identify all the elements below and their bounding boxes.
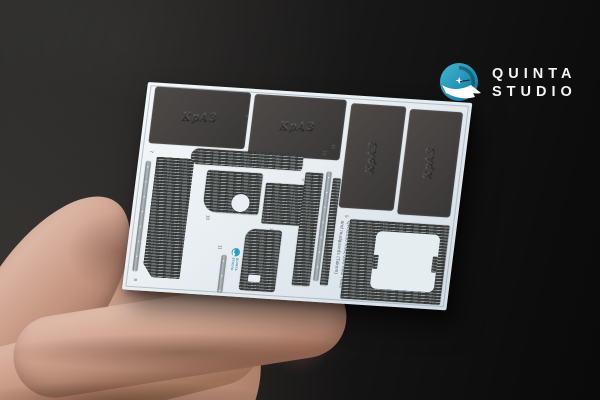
part-number-label: 9 <box>244 114 249 117</box>
part-number-label: 10 <box>205 215 211 220</box>
decal-sheet: КрАЗ КрАЗ КрАЗ КрАЗ <box>122 82 472 310</box>
part-numbers-layer: 794313121025811 <box>122 82 472 310</box>
part-number-label: 7 <box>149 150 154 153</box>
part-number-label: 11 <box>217 245 223 250</box>
quinta-studio-logo: QUINTA STUDIO <box>437 60 577 106</box>
photo-scene: КрАЗ КрАЗ КрАЗ КрАЗ <box>0 0 600 400</box>
quinta-logo-icon <box>437 60 483 106</box>
part-number-label: 4 <box>299 163 304 166</box>
brand-line2: STUDIO <box>492 83 577 102</box>
part-number-label: 8 <box>133 278 138 281</box>
part-number-label: 12 <box>331 144 337 149</box>
part-number-label: 13 <box>322 150 328 155</box>
part-number-label: 2 <box>269 228 274 231</box>
part-number-label: 3 <box>301 178 306 181</box>
brand-line1: QUINTA <box>492 65 577 84</box>
part-number-label: 5 <box>344 215 349 218</box>
brand-wordmark: QUINTA STUDIO <box>492 65 577 102</box>
